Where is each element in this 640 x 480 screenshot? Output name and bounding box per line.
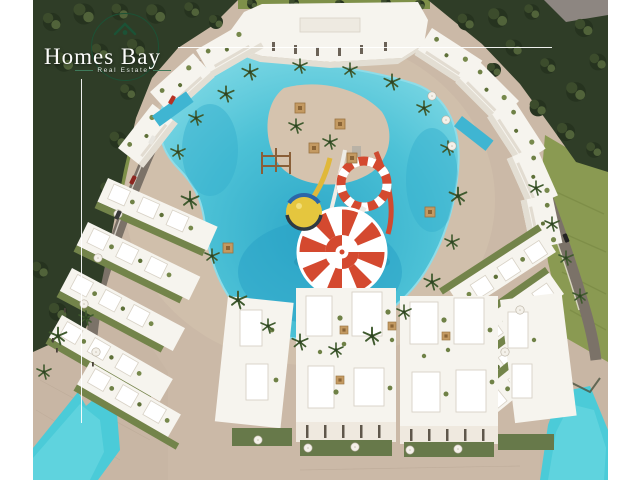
left-margin	[0, 0, 33, 480]
tree-icon	[488, 8, 508, 28]
vertical-rule-line	[81, 79, 82, 423]
umbrella-icon	[428, 92, 436, 100]
umbrella-icon	[448, 142, 456, 150]
umbrella-icon	[516, 306, 524, 314]
umbrella-icon	[442, 116, 450, 124]
umbrella-icon	[254, 436, 262, 444]
tree-icon	[586, 142, 601, 157]
tree-icon	[209, 15, 223, 29]
horizontal-rule-line	[178, 47, 552, 48]
tree-icon	[146, 4, 166, 24]
clubhouse	[228, 2, 428, 68]
tree-icon	[524, 4, 539, 19]
tree-icon	[32, 262, 49, 279]
tree-icon	[575, 19, 593, 37]
tagline-dash-left	[75, 70, 93, 71]
umbrella-icon	[454, 445, 462, 453]
tree-icon	[506, 40, 523, 57]
tagline-text: Real Estate	[97, 67, 148, 74]
tree-icon	[74, 4, 95, 25]
resort-render: Homes Bay Real Estate	[0, 0, 640, 480]
cabana-icon	[295, 103, 305, 113]
umbrella-icon	[501, 348, 509, 356]
tree-icon	[540, 58, 555, 73]
tree-icon	[120, 84, 135, 99]
umbrella-icon	[304, 444, 312, 452]
cabana-icon	[335, 119, 345, 129]
cabana-icon	[223, 243, 233, 253]
tree-icon	[184, 2, 199, 17]
umbrella-icon	[94, 254, 102, 262]
tree-icon	[566, 82, 586, 102]
tree-icon	[590, 54, 607, 71]
brand-tagline: Real Estate	[56, 67, 190, 74]
cabana-icon	[309, 143, 319, 153]
cabana-icon	[425, 207, 435, 217]
tree-icon	[557, 123, 575, 141]
tree-icon	[530, 100, 547, 117]
tree-icon	[458, 14, 475, 31]
right-margin	[608, 0, 640, 480]
cabana-icon	[347, 153, 357, 163]
umbrella-icon	[406, 446, 414, 454]
tagline-dash-right	[153, 70, 171, 71]
tree-icon	[43, 13, 61, 31]
umbrella-icon	[351, 443, 359, 451]
facade	[296, 422, 396, 442]
umbrella-icon	[92, 348, 100, 356]
house-in-circle-icon	[112, 20, 138, 42]
climbing-ball	[286, 194, 322, 230]
